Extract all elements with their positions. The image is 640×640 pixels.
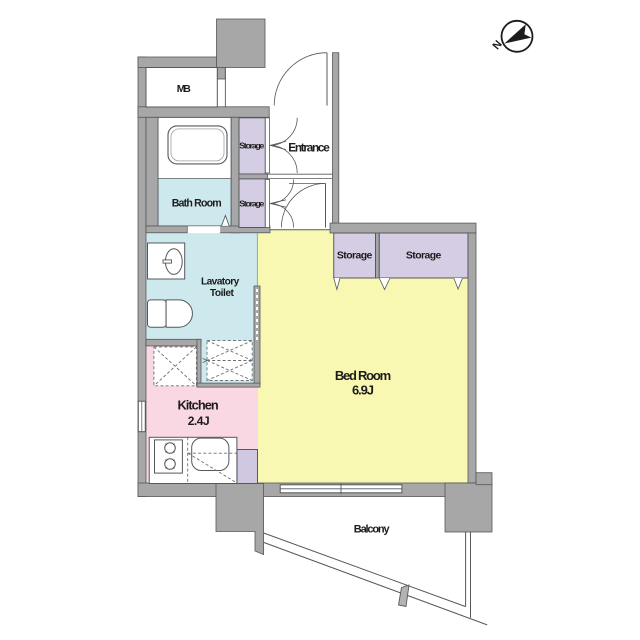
svg-text:Balcony: Balcony bbox=[354, 524, 391, 536]
svg-text:Toilet: Toilet bbox=[210, 288, 235, 299]
svg-text:Storage: Storage bbox=[239, 140, 264, 150]
svg-text:Bath Room: Bath Room bbox=[172, 197, 222, 209]
svg-text:Storage: Storage bbox=[337, 250, 373, 261]
svg-text:Lavatory: Lavatory bbox=[201, 277, 240, 288]
svg-text:Kitchen: Kitchen bbox=[177, 397, 218, 412]
svg-text:2.4J: 2.4J bbox=[188, 414, 210, 428]
svg-text:6.9J: 6.9J bbox=[352, 383, 374, 398]
svg-text:Entrance: Entrance bbox=[288, 140, 330, 154]
svg-text:Storage: Storage bbox=[406, 250, 442, 261]
svg-text:Storage: Storage bbox=[239, 199, 264, 209]
svg-text:Bed Room: Bed Room bbox=[335, 368, 391, 383]
svg-text:MB: MB bbox=[177, 83, 191, 95]
